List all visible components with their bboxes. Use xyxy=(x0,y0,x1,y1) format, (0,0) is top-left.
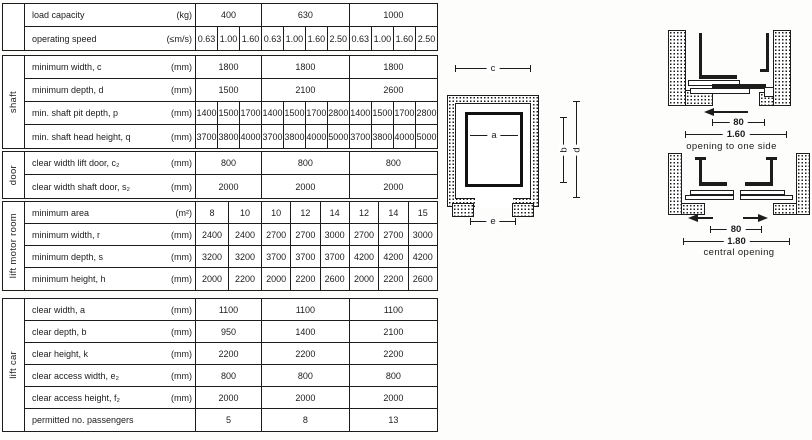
row-label: minimum width, r(mm) xyxy=(25,224,196,245)
value-group: 1800 xyxy=(262,56,350,78)
table-row: minimum depth, s(mm)32003200370037003700… xyxy=(25,246,437,268)
value-cell: 1800 xyxy=(262,56,349,78)
value-cell: 0.63 xyxy=(262,27,284,50)
row-label-text: min. shaft head height, q xyxy=(32,132,131,142)
value-cell: 2700 xyxy=(350,224,379,245)
value-cell: 2000 xyxy=(262,268,291,290)
door-panel xyxy=(685,195,734,200)
row-label: permitted no. passengers xyxy=(25,409,196,431)
row-label: clear width lift door, c₂(mm) xyxy=(25,152,196,174)
value-cell: 2200 xyxy=(291,268,320,290)
value-cell: 4000 xyxy=(306,125,328,148)
table-row: load capacity(kg)4006301000 xyxy=(25,4,437,27)
value-group: 1800 xyxy=(196,56,262,78)
value-cell: 800 xyxy=(350,365,437,386)
value-group: 13 xyxy=(350,409,437,431)
value-group: 800 xyxy=(196,365,262,386)
value-cell: 1.00 xyxy=(218,27,240,50)
row-unit: (mm) xyxy=(169,371,192,381)
door-travel-arrow-right xyxy=(743,214,768,222)
table-section-shaft: shaftminimum width, c(mm)180018001800min… xyxy=(2,55,438,149)
value-group: 8 xyxy=(262,409,350,431)
value-cell: 1.00 xyxy=(284,27,306,50)
wall-foot-right xyxy=(773,203,797,215)
row-label-text: clear depth, b xyxy=(32,327,87,337)
value-cell: 5000 xyxy=(328,125,349,148)
row-label: min. shaft head height, q(mm) xyxy=(25,125,196,148)
row-values: 32003200370037003700420042004200 xyxy=(196,246,437,267)
row-values: 200020002000 xyxy=(196,387,437,408)
wall-left xyxy=(668,30,686,106)
value-cell: 2200 xyxy=(379,268,408,290)
value-group: 32003200 xyxy=(196,246,262,267)
value-group: 20002200 xyxy=(196,268,262,290)
shaft-wall-stub-right xyxy=(512,203,534,217)
table-row: operating speed(≤m/s)0.631.001.600.631.0… xyxy=(25,27,437,50)
dim-shaft-depth-d: d xyxy=(572,101,581,198)
value-cell: 1000 xyxy=(350,4,437,26)
row-label-text: minimum depth, d xyxy=(32,85,104,95)
value-group: 800 xyxy=(262,152,350,174)
value-group: 2200 xyxy=(350,343,437,364)
value-cell: 3200 xyxy=(229,246,261,267)
value-cell: 8 xyxy=(196,202,229,223)
dim-label-e: e xyxy=(486,217,499,227)
value-group: 2000 xyxy=(350,175,437,198)
value-group: 140015001700 xyxy=(196,102,262,124)
door-frame-line xyxy=(770,157,773,186)
value-group: 270027003000 xyxy=(262,224,350,245)
value-cell: 12 xyxy=(350,202,379,223)
value-cell: 1800 xyxy=(350,56,437,78)
value-cell: 3700 xyxy=(262,246,291,267)
value-cell: 2600 xyxy=(350,79,437,101)
value-cell: 4200 xyxy=(379,246,408,267)
row-label: minimum width, c(mm) xyxy=(25,56,196,78)
value-group: 0.631.001.602.50 xyxy=(350,27,437,50)
row-label-text: clear height, k xyxy=(32,349,88,359)
value-group: 1100 xyxy=(350,299,437,320)
value-cell: 2100 xyxy=(262,79,349,101)
value-group: 800 xyxy=(196,152,262,174)
row-label-text: clear access width, e₂ xyxy=(32,371,119,381)
row-label: min. shaft pit depth, p(mm) xyxy=(25,102,196,124)
value-cell: 2000 xyxy=(350,175,437,198)
table-row: minimum area(m²)810101214121415 xyxy=(25,202,437,224)
value-cell: 400 xyxy=(196,4,261,26)
row-label: clear height, k(mm) xyxy=(25,343,196,364)
dim-clear-opening: 80 xyxy=(712,118,765,127)
section-side-label-text: lift car xyxy=(8,351,19,379)
value-cell: 2100 xyxy=(350,321,437,342)
row-label-text: min. shaft pit depth, p xyxy=(32,108,118,118)
row-unit: (mm) xyxy=(169,158,192,168)
lift-spec-table: load capacity(kg)4006301000operating spe… xyxy=(2,3,438,432)
table-row: minimum width, r(mm)24002400270027003000… xyxy=(25,224,437,246)
value-group: 2200 xyxy=(196,343,262,364)
diagram-caption: opening to one side xyxy=(656,141,807,152)
value-group: 2000 xyxy=(262,175,350,198)
diagram-caption: central opening xyxy=(656,247,812,258)
value-group: 800 xyxy=(350,152,437,174)
section-side-label-lift-car: lift car xyxy=(3,299,25,431)
value-cell: 12 xyxy=(291,202,320,223)
value-cell: 10 xyxy=(262,202,291,223)
value-cell: 5000 xyxy=(416,125,437,148)
value-cell: 3200 xyxy=(196,246,229,267)
section-rows: minimum width, c(mm)180018001800minimum … xyxy=(25,56,437,148)
table-row: clear access height, f₂(mm)200020002000 xyxy=(25,387,437,409)
section-side-label-capacity xyxy=(3,4,25,50)
value-group: 270027003000 xyxy=(350,224,437,245)
value-group: 200022002600 xyxy=(262,268,350,290)
value-cell: 2800 xyxy=(416,102,437,124)
door-panel xyxy=(740,195,793,200)
row-values: 800800800 xyxy=(196,152,437,174)
value-group: 2100 xyxy=(262,79,350,101)
value-cell: 2000 xyxy=(350,387,437,408)
value-cell: 3700 xyxy=(196,125,218,148)
value-group: 2100 xyxy=(350,321,437,342)
value-cell: 4200 xyxy=(350,246,379,267)
dim-overall-width: 1.60 xyxy=(685,130,787,139)
value-group: 1500 xyxy=(196,79,262,101)
value-cell: 1700 xyxy=(306,102,328,124)
row-values: 3700380040003700380040005000370038004000… xyxy=(196,125,437,148)
dim-car-depth-b: b xyxy=(559,117,568,183)
value-group: 2000 xyxy=(262,387,350,408)
row-unit: (≤m/s) xyxy=(165,34,192,44)
table-section-motor-room: lift motor roomminimum area(m²)810101214… xyxy=(2,201,438,291)
row-label-text: clear width, a xyxy=(32,305,85,315)
value-cell: 1.60 xyxy=(394,27,416,50)
value-cell: 2.50 xyxy=(328,27,349,50)
row-values: 150021002600 xyxy=(196,79,437,101)
value-cell: 2000 xyxy=(196,387,261,408)
value-group: 2000 xyxy=(350,387,437,408)
value-group: 1000 xyxy=(350,4,437,26)
value-cell: 3000 xyxy=(321,224,349,245)
section-side-label-motor-room: lift motor room xyxy=(3,202,25,290)
wall-right xyxy=(773,30,791,106)
value-cell: 2000 xyxy=(262,387,349,408)
section-rows: clear width, a(mm)110011001100clear dept… xyxy=(25,299,437,431)
value-group: 810 xyxy=(196,202,262,223)
table-row: clear width shaft door, s₂(mm)2000200020… xyxy=(25,175,437,198)
dim-label-180: 1.80 xyxy=(723,237,750,247)
value-cell: 1500 xyxy=(372,102,394,124)
value-group: 1400150017002800 xyxy=(350,102,437,124)
value-cell: 800 xyxy=(196,152,261,174)
value-cell: 3000 xyxy=(409,224,437,245)
table-row: minimum depth, d(mm)150021002600 xyxy=(25,79,437,102)
section-side-label-shaft: shaft xyxy=(3,56,25,148)
row-label: minimum height, h(mm) xyxy=(25,268,196,290)
door-frame-line xyxy=(745,182,770,186)
row-label: minimum depth, s(mm) xyxy=(25,246,196,267)
section-side-label-door: door xyxy=(3,152,25,198)
wall-left xyxy=(668,153,682,215)
value-cell: 2700 xyxy=(291,224,320,245)
value-cell: 4000 xyxy=(240,125,261,148)
section-side-label-text: lift motor room xyxy=(8,213,19,278)
value-cell: 1100 xyxy=(196,299,261,320)
value-cell: 1400 xyxy=(196,102,218,124)
value-cell: 2200 xyxy=(350,343,437,364)
dim-label-d: d xyxy=(571,144,582,155)
dim-car-width-a: a xyxy=(470,131,518,140)
row-label: clear depth, b(mm) xyxy=(25,321,196,342)
value-cell: 1.60 xyxy=(306,27,328,50)
value-cell: 2800 xyxy=(328,102,349,124)
value-cell: 2000 xyxy=(196,268,229,290)
value-cell: 800 xyxy=(350,152,437,174)
section-rows: load capacity(kg)4006301000operating spe… xyxy=(25,4,437,50)
value-group: 630 xyxy=(262,4,350,26)
row-values: 220022002200 xyxy=(196,343,437,364)
value-cell: 13 xyxy=(350,409,437,431)
value-cell: 1700 xyxy=(240,102,261,124)
value-group: 950 xyxy=(196,321,262,342)
door-frame-line xyxy=(702,182,727,186)
row-label-text: clear width lift door, c₂ xyxy=(32,158,120,168)
value-group: 3700380040005000 xyxy=(350,125,437,148)
value-group: 1800 xyxy=(350,56,437,78)
table-section-door: doorclear width lift door, c₂(mm)8008008… xyxy=(2,151,438,199)
value-cell: 3700 xyxy=(262,125,284,148)
door-frame-line xyxy=(760,69,769,72)
value-group: 800 xyxy=(262,365,350,386)
value-cell: 0.63 xyxy=(350,27,372,50)
dim-shaft-width-c: c xyxy=(455,64,531,73)
row-unit: (mm) xyxy=(169,305,192,315)
value-group: 1400 xyxy=(262,321,350,342)
row-unit: (kg) xyxy=(175,10,193,20)
value-cell: 3700 xyxy=(321,246,349,267)
shaft-door-opening xyxy=(475,194,513,208)
row-label-text: operating speed xyxy=(32,34,97,44)
value-group: 200022002600 xyxy=(350,268,437,290)
value-cell: 3700 xyxy=(350,125,372,148)
row-values: 24002400270027003000270027003000 xyxy=(196,224,437,245)
door-travel-arrow-left xyxy=(688,214,713,222)
value-group: 800 xyxy=(350,365,437,386)
row-values: 810101214121415 xyxy=(196,202,437,223)
value-group: 1100 xyxy=(196,299,262,320)
row-values: 800800800 xyxy=(196,365,437,386)
value-cell: 2200 xyxy=(262,343,349,364)
row-label-text: minimum width, c xyxy=(32,62,102,72)
row-unit: (mm) xyxy=(169,327,192,337)
door-sill-box xyxy=(764,87,774,97)
door-travel-arrow-left xyxy=(704,108,748,116)
door-frame-line xyxy=(766,33,769,72)
row-label-text: minimum height, h xyxy=(32,274,106,284)
row-unit: (mm) xyxy=(169,349,192,359)
value-group: 0.631.001.60 xyxy=(196,27,262,50)
row-values: 110011001100 xyxy=(196,299,437,320)
row-unit: (mm) xyxy=(169,182,192,192)
value-cell: 1100 xyxy=(262,299,349,320)
value-cell: 1800 xyxy=(196,56,261,78)
value-cell: 2000 xyxy=(350,268,379,290)
value-group: 5 xyxy=(196,409,262,431)
row-label: clear access height, f₂(mm) xyxy=(25,387,196,408)
row-unit: (mm) xyxy=(169,393,192,403)
value-cell: 4200 xyxy=(409,246,437,267)
door-frame-line xyxy=(695,157,706,160)
section-side-label-text: shaft xyxy=(8,91,19,113)
door-diagram-central: 80 1.80 central opening xyxy=(668,153,810,265)
value-group: 2600 xyxy=(350,79,437,101)
value-group: 101214 xyxy=(262,202,350,223)
value-cell: 3800 xyxy=(372,125,394,148)
value-cell: 2200 xyxy=(229,268,261,290)
value-group: 1100 xyxy=(262,299,350,320)
row-values: 180018001800 xyxy=(196,56,437,78)
value-group: 370038004000 xyxy=(196,125,262,148)
shaft-plan-diagram: c a b d e xyxy=(440,55,620,255)
row-label-text: clear access height, f₂ xyxy=(32,393,120,403)
table-row: clear height, k(mm)220022002200 xyxy=(25,343,437,365)
row-label: clear width shaft door, s₂(mm) xyxy=(25,175,196,198)
door-frame-line xyxy=(699,33,702,79)
dim-label-c: c xyxy=(487,64,500,74)
wall-right xyxy=(796,153,810,215)
value-cell: 4000 xyxy=(394,125,416,148)
value-cell: 2000 xyxy=(262,175,349,198)
table-row: minimum height, h(mm)2000220020002200260… xyxy=(25,268,437,290)
dim-label-80: 80 xyxy=(727,225,746,235)
value-cell: 800 xyxy=(262,365,349,386)
row-label: minimum area(m²) xyxy=(25,202,196,223)
value-cell: 2600 xyxy=(409,268,437,290)
value-cell: 2700 xyxy=(262,224,291,245)
value-cell: 1.60 xyxy=(240,27,261,50)
row-label-text: minimum area xyxy=(32,208,89,218)
dim-label-a: a xyxy=(487,131,500,141)
dim-door-width-e: e xyxy=(470,217,516,226)
row-label-text: clear width shaft door, s₂ xyxy=(32,182,130,192)
row-label: clear width, a(mm) xyxy=(25,299,196,320)
row-values: 1400150017001400150017002800140015001700… xyxy=(196,102,437,124)
table-row: minimum width, c(mm)180018001800 xyxy=(25,56,437,79)
table-row: clear depth, b(mm)95014002100 xyxy=(25,321,437,343)
value-cell: 1500 xyxy=(196,79,261,101)
row-label-text: load capacity xyxy=(32,10,85,20)
table-row: min. shaft head height, q(mm)37003800400… xyxy=(25,125,437,148)
table-row: clear width, a(mm)110011001100 xyxy=(25,299,437,321)
page-background: { "table": { "sections": [ { "id": "capa… xyxy=(0,0,812,440)
value-cell: 2400 xyxy=(196,224,229,245)
value-cell: 1500 xyxy=(284,102,306,124)
row-label: minimum depth, d(mm) xyxy=(25,79,196,101)
door-diagram-one-side: 80 1.60 opening to one side xyxy=(668,28,795,153)
value-cell: 800 xyxy=(262,152,349,174)
door-frame-line xyxy=(699,75,737,79)
row-label: clear access width, e₂(mm) xyxy=(25,365,196,386)
row-values: 4006301000 xyxy=(196,4,437,26)
table-row: permitted no. passengers5813 xyxy=(25,409,437,431)
value-cell: 1700 xyxy=(394,102,416,124)
value-cell: 10 xyxy=(229,202,261,223)
value-cell: 2700 xyxy=(379,224,408,245)
row-label-text: minimum depth, s xyxy=(32,252,103,262)
dim-label-160: 1.60 xyxy=(723,130,750,140)
row-label: operating speed(≤m/s) xyxy=(25,27,196,50)
value-cell: 1400 xyxy=(262,321,349,342)
value-cell: 3800 xyxy=(218,125,240,148)
value-cell: 3800 xyxy=(284,125,306,148)
dim-label-b: b xyxy=(558,144,569,155)
row-values: 0.631.001.600.631.001.602.500.631.001.60… xyxy=(196,27,437,50)
value-cell: 2400 xyxy=(229,224,261,245)
value-group: 0.631.001.602.50 xyxy=(262,27,350,50)
shaft-wall-stub-left xyxy=(452,203,474,217)
value-cell: 2200 xyxy=(196,343,261,364)
row-values: 20002200200022002600200022002600 xyxy=(196,268,437,290)
table-row: clear width lift door, c₂(mm)800800800 xyxy=(25,152,437,175)
dim-label-80: 80 xyxy=(729,118,748,128)
row-unit: (mm) xyxy=(169,85,192,95)
value-cell: 1400 xyxy=(350,102,372,124)
value-cell: 5 xyxy=(196,409,261,431)
row-unit: (mm) xyxy=(169,62,192,72)
value-cell: 1.00 xyxy=(372,27,394,50)
row-unit: (mm) xyxy=(169,230,192,240)
section-rows: minimum area(m²)810101214121415minimum w… xyxy=(25,202,437,290)
value-group: 121415 xyxy=(350,202,437,223)
value-group: 24002400 xyxy=(196,224,262,245)
row-values: 5813 xyxy=(196,409,437,431)
value-cell: 1400 xyxy=(262,102,284,124)
value-cell: 3700 xyxy=(291,246,320,267)
door-panel xyxy=(690,88,750,94)
value-cell: 950 xyxy=(196,321,261,342)
value-cell: 15 xyxy=(409,202,437,223)
value-cell: 2.50 xyxy=(416,27,437,50)
row-unit: (mm) xyxy=(169,108,192,118)
table-section-capacity: load capacity(kg)4006301000operating spe… xyxy=(2,3,438,51)
value-cell: 0.63 xyxy=(196,27,218,50)
value-group: 370037003700 xyxy=(262,246,350,267)
table-section-lift-car: lift carclear width, a(mm)110011001100cl… xyxy=(2,298,438,432)
lift-car-outline: a xyxy=(465,112,523,187)
row-unit: (mm) xyxy=(169,274,192,284)
value-cell: 14 xyxy=(321,202,349,223)
row-unit: (mm) xyxy=(169,132,192,142)
dim-overall-width: 1.80 xyxy=(683,237,790,246)
dim-clear-opening: 80 xyxy=(710,225,762,234)
row-label: load capacity(kg) xyxy=(25,4,196,26)
door-frame-line xyxy=(766,157,777,160)
value-cell: 1100 xyxy=(350,299,437,320)
value-cell: 8 xyxy=(262,409,349,431)
value-group: 2000 xyxy=(196,175,262,198)
row-label-text: minimum width, r xyxy=(32,230,100,240)
value-group: 3700380040005000 xyxy=(262,125,350,148)
row-unit: (mm) xyxy=(169,252,192,262)
value-group: 1400150017002800 xyxy=(262,102,350,124)
table-row: min. shaft pit depth, p(mm)1400150017001… xyxy=(25,102,437,125)
value-group: 2000 xyxy=(196,387,262,408)
value-group: 420042004200 xyxy=(350,246,437,267)
value-cell: 2000 xyxy=(196,175,261,198)
value-cell: 630 xyxy=(262,4,349,26)
section-side-label-text: door xyxy=(8,165,19,185)
value-group: 400 xyxy=(196,4,262,26)
row-values: 200020002000 xyxy=(196,175,437,198)
